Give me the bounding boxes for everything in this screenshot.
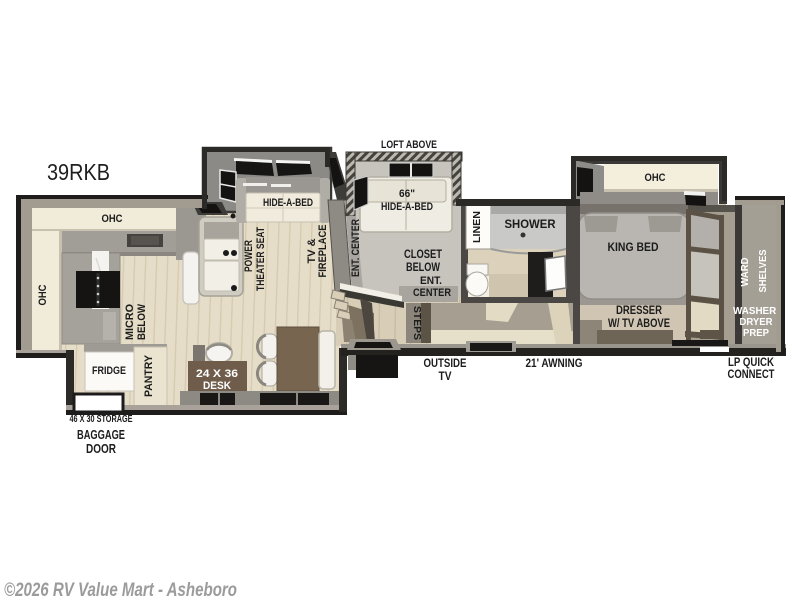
svg-text:21' AWNING: 21' AWNING bbox=[526, 356, 583, 370]
svg-text:DOOR: DOOR bbox=[86, 441, 116, 456]
svg-text:SHELVES: SHELVES bbox=[757, 250, 769, 293]
svg-text:KING BED: KING BED bbox=[608, 240, 659, 254]
svg-text:OHC: OHC bbox=[102, 213, 123, 225]
svg-text:ENT. CENTER: ENT. CENTER bbox=[350, 219, 362, 277]
svg-text:FIREPLACE: FIREPLACE bbox=[317, 225, 329, 278]
svg-text:W/ TV ABOVE: W/ TV ABOVE bbox=[608, 318, 670, 330]
svg-text:OHC: OHC bbox=[37, 284, 49, 305]
svg-text:PREP: PREP bbox=[743, 327, 769, 339]
svg-text:TV: TV bbox=[439, 369, 452, 383]
svg-text:CONNECT: CONNECT bbox=[728, 367, 776, 381]
svg-text:BELOW: BELOW bbox=[136, 303, 148, 340]
svg-text:POWER: POWER bbox=[243, 240, 255, 272]
svg-text:ENT.: ENT. bbox=[420, 275, 442, 287]
svg-text:HIDE-A-BED: HIDE-A-BED bbox=[381, 201, 433, 213]
svg-text:66": 66" bbox=[399, 188, 415, 200]
svg-text:LOFT ABOVE: LOFT ABOVE bbox=[381, 139, 437, 151]
svg-text:DESK: DESK bbox=[203, 380, 231, 392]
svg-text:BAGGAGE: BAGGAGE bbox=[77, 427, 125, 442]
svg-text:MICRO: MICRO bbox=[124, 304, 136, 340]
svg-text:HIDE-A-BED: HIDE-A-BED bbox=[263, 197, 313, 209]
svg-text:24 X 36: 24 X 36 bbox=[196, 368, 238, 380]
svg-text:©2026 RV Value Mart - Asheboro: ©2026 RV Value Mart - Asheboro bbox=[4, 580, 237, 600]
svg-text:PANTRY: PANTRY bbox=[143, 354, 155, 397]
svg-text:CENTER: CENTER bbox=[413, 287, 451, 299]
svg-text:OHC: OHC bbox=[645, 172, 666, 184]
svg-text:FRIDGE: FRIDGE bbox=[92, 365, 126, 377]
svg-text:STEPS: STEPS bbox=[411, 306, 423, 340]
svg-text:SHOWER: SHOWER bbox=[505, 219, 557, 231]
svg-text:BELOW: BELOW bbox=[406, 262, 440, 274]
svg-text:WARD: WARD bbox=[739, 257, 751, 286]
svg-text:OUTSIDE: OUTSIDE bbox=[424, 356, 467, 370]
svg-text:46 X 30 STORAGE: 46 X 30 STORAGE bbox=[70, 413, 133, 425]
svg-text:LINEN: LINEN bbox=[471, 211, 483, 243]
svg-text:DRESSER: DRESSER bbox=[616, 305, 663, 317]
svg-text:THEATER SEAT: THEATER SEAT bbox=[255, 227, 267, 291]
svg-text:39RKB: 39RKB bbox=[47, 159, 110, 185]
svg-text:CLOSET: CLOSET bbox=[404, 249, 442, 261]
